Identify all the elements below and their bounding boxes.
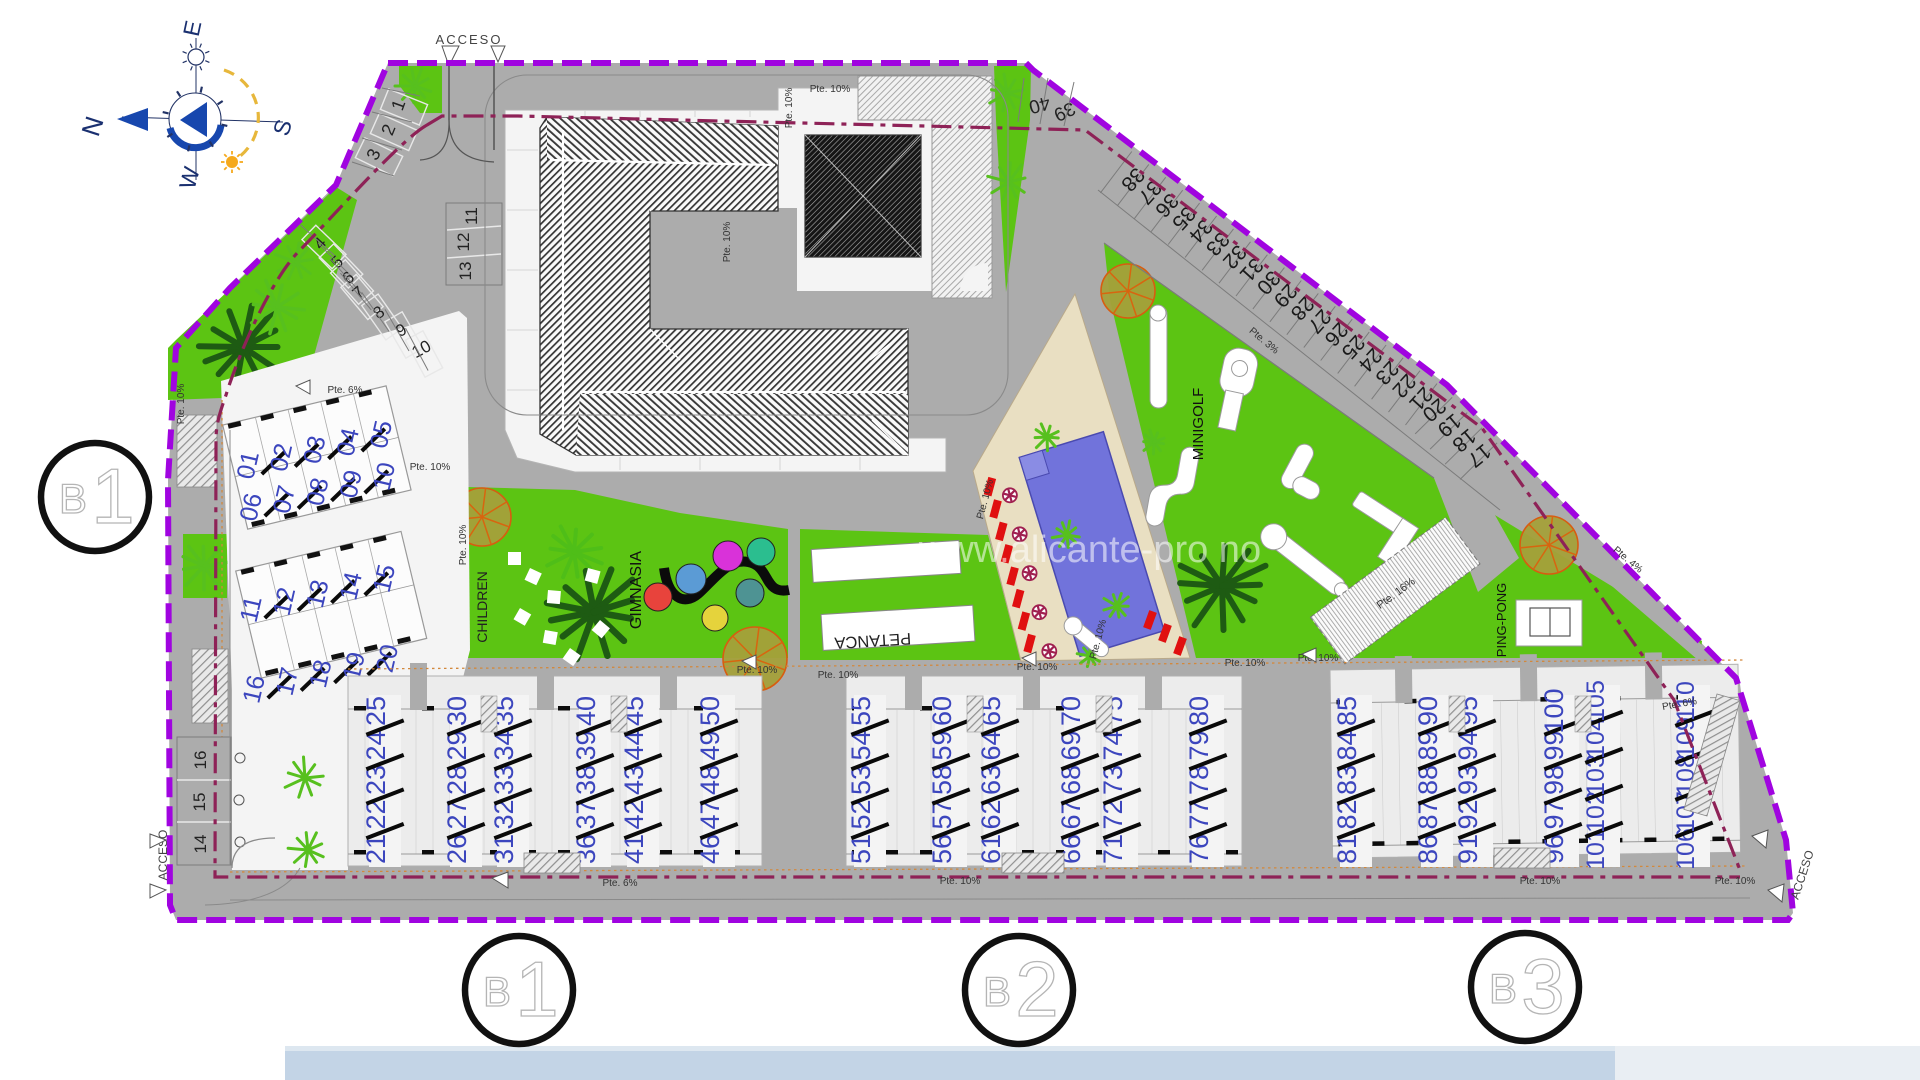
svg-text:62: 62 — [976, 799, 1006, 829]
svg-text:69: 69 — [1056, 730, 1086, 760]
svg-text:1: 1 — [515, 945, 558, 1033]
svg-text:15: 15 — [190, 793, 209, 812]
svg-text:55: 55 — [846, 696, 876, 726]
svg-text:33: 33 — [489, 765, 519, 795]
svg-text:23: 23 — [361, 765, 391, 795]
svg-text:Pte. 10%: Pte. 10% — [1225, 658, 1266, 669]
svg-text:11: 11 — [462, 207, 481, 225]
svg-text:Pte. 10%: Pte. 10% — [410, 462, 451, 473]
svg-text:70: 70 — [1056, 696, 1086, 726]
svg-text:91: 91 — [1453, 834, 1483, 864]
svg-text:Pte. 6%: Pte. 6% — [327, 385, 362, 396]
svg-text:www.alicante-pro no: www.alicante-pro no — [918, 529, 1261, 571]
svg-text:32: 32 — [489, 799, 519, 829]
svg-text:83: 83 — [1332, 765, 1362, 795]
svg-text:MINIGOLF: MINIGOLF — [1190, 388, 1207, 461]
svg-text:86: 86 — [1413, 834, 1443, 864]
svg-text:58: 58 — [927, 765, 957, 795]
svg-text:Pte. 10%: Pte. 10% — [737, 665, 778, 676]
svg-text:B: B — [483, 968, 511, 1015]
svg-text:25: 25 — [361, 696, 391, 726]
svg-text:87: 87 — [1413, 799, 1443, 829]
svg-text:88: 88 — [1413, 765, 1443, 795]
svg-text:94: 94 — [1453, 730, 1483, 760]
svg-text:68: 68 — [1056, 765, 1086, 795]
svg-text:3: 3 — [1521, 942, 1564, 1030]
svg-text:90: 90 — [1413, 696, 1443, 726]
svg-text:Pte. 10%: Pte. 10% — [1520, 876, 1561, 887]
svg-text:Pte. 10%: Pte. 10% — [722, 222, 733, 263]
svg-text:Pte. 10%: Pte. 10% — [1715, 876, 1756, 887]
svg-text:74: 74 — [1098, 730, 1128, 760]
svg-text:57: 57 — [927, 799, 957, 829]
svg-text:100: 100 — [1539, 688, 1569, 733]
svg-text:54: 54 — [846, 730, 876, 760]
svg-text:PING-PONG: PING-PONG — [1494, 583, 1509, 657]
svg-text:Pte. 10%: Pte. 10% — [458, 525, 469, 566]
svg-text:67: 67 — [1056, 799, 1086, 829]
svg-text:64: 64 — [976, 730, 1006, 760]
svg-text:26: 26 — [442, 834, 472, 864]
svg-text:82: 82 — [1332, 799, 1362, 829]
svg-text:92: 92 — [1453, 799, 1483, 829]
svg-text:50: 50 — [695, 696, 725, 726]
svg-text:84: 84 — [1332, 730, 1362, 760]
svg-text:12: 12 — [454, 233, 473, 252]
svg-text:52: 52 — [846, 799, 876, 829]
svg-text:48: 48 — [695, 765, 725, 795]
svg-text:31: 31 — [489, 834, 519, 864]
svg-text:80: 80 — [1184, 696, 1214, 726]
svg-text:Pte. 10%: Pte. 10% — [1017, 662, 1058, 673]
svg-text:38: 38 — [571, 765, 601, 795]
svg-text:CHILDREN: CHILDREN — [474, 571, 490, 643]
svg-text:21: 21 — [361, 834, 391, 864]
svg-text:89: 89 — [1413, 730, 1443, 760]
svg-text:51: 51 — [846, 834, 876, 864]
svg-text:73: 73 — [1098, 765, 1128, 795]
svg-text:72: 72 — [1098, 799, 1128, 829]
svg-text:30: 30 — [442, 696, 472, 726]
svg-text:43: 43 — [619, 765, 649, 795]
svg-text:16: 16 — [191, 751, 210, 770]
svg-text:14: 14 — [191, 835, 210, 854]
svg-text:97: 97 — [1539, 799, 1569, 829]
svg-text:34: 34 — [489, 730, 519, 760]
svg-text:2: 2 — [1015, 945, 1058, 1033]
svg-text:1: 1 — [91, 452, 134, 540]
svg-text:24: 24 — [361, 730, 391, 760]
svg-text:Pte. 10%: Pte. 10% — [810, 84, 851, 95]
svg-text:B: B — [1489, 965, 1517, 1012]
svg-text:46: 46 — [695, 834, 725, 864]
svg-text:47: 47 — [695, 799, 725, 829]
svg-text:Pte. 10%: Pte. 10% — [818, 670, 859, 681]
svg-text:93: 93 — [1453, 765, 1483, 795]
svg-text:56: 56 — [927, 834, 957, 864]
svg-text:37: 37 — [571, 799, 601, 829]
svg-text:59: 59 — [927, 730, 957, 760]
svg-text:99: 99 — [1539, 730, 1569, 760]
svg-text:60: 60 — [927, 696, 957, 726]
svg-text:29: 29 — [442, 730, 472, 760]
svg-text:71: 71 — [1098, 834, 1128, 864]
svg-text:Pte. 10%: Pte. 10% — [940, 876, 981, 887]
svg-text:13: 13 — [456, 262, 475, 281]
svg-text:39: 39 — [571, 730, 601, 760]
svg-text:22: 22 — [361, 799, 391, 829]
svg-text:GIMNASIA: GIMNASIA — [628, 551, 645, 630]
svg-text:53: 53 — [846, 765, 876, 795]
svg-text:85: 85 — [1332, 696, 1362, 726]
svg-text:77: 77 — [1184, 799, 1214, 829]
svg-text:76: 76 — [1184, 834, 1214, 864]
svg-text:63: 63 — [976, 765, 1006, 795]
svg-text:28: 28 — [442, 765, 472, 795]
svg-text:B: B — [983, 968, 1011, 1015]
svg-text:B: B — [59, 475, 87, 522]
svg-text:ACCESO: ACCESO — [436, 32, 503, 47]
svg-text:61: 61 — [976, 834, 1006, 864]
svg-text:42: 42 — [619, 799, 649, 829]
svg-text:81: 81 — [1332, 834, 1362, 864]
svg-text:27: 27 — [442, 799, 472, 829]
svg-text:Pte. 10%: Pte. 10% — [176, 384, 187, 425]
svg-text:98: 98 — [1539, 765, 1569, 795]
svg-text:44: 44 — [619, 730, 649, 760]
svg-text:78: 78 — [1184, 765, 1214, 795]
svg-text:Pte. 6%: Pte. 6% — [602, 878, 637, 889]
svg-text:40: 40 — [571, 696, 601, 726]
svg-text:49: 49 — [695, 730, 725, 760]
svg-text:Pte. 10%: Pte. 10% — [784, 88, 795, 129]
svg-text:41: 41 — [619, 834, 649, 864]
svg-text:79: 79 — [1184, 730, 1214, 760]
